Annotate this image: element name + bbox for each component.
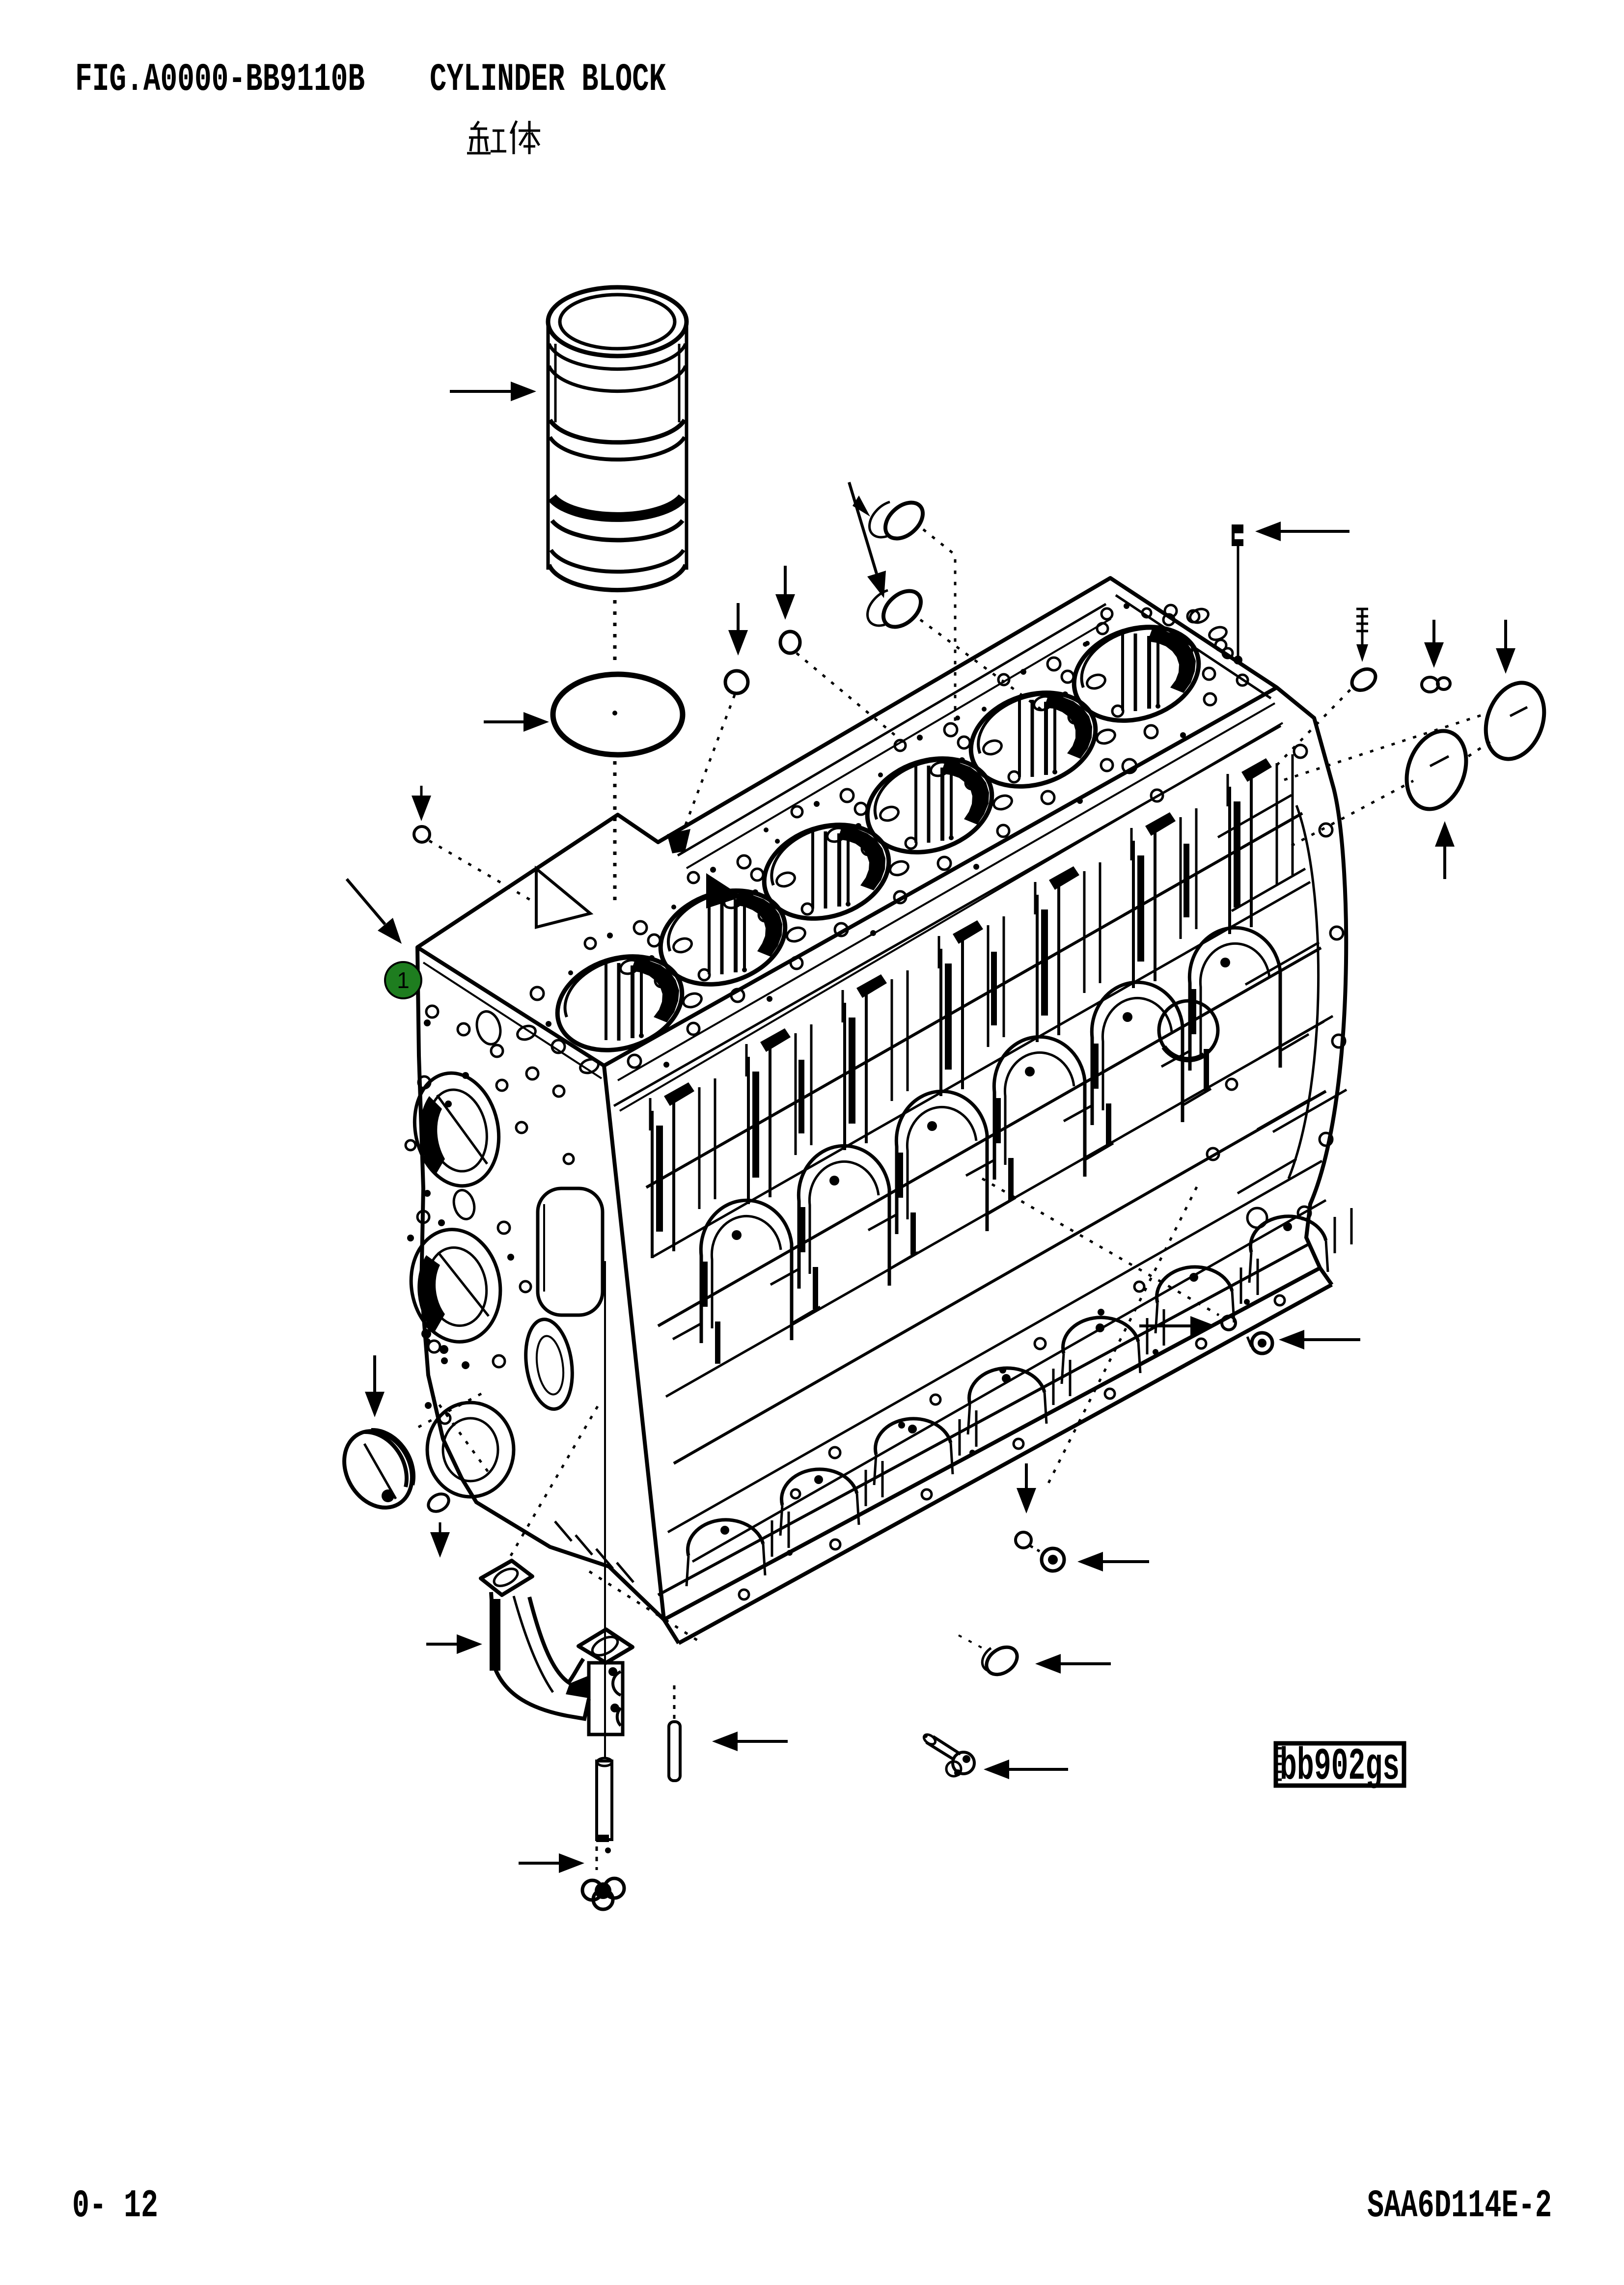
svg-text:FIG.A0000-BB9110B: FIG.A0000-BB9110B [75, 57, 365, 102]
svg-text:0- 12: 0- 12 [72, 2184, 158, 2229]
svg-text:1: 1 [397, 967, 410, 993]
svg-text:CYLINDER BLOCK: CYLINDER BLOCK [430, 57, 666, 102]
svg-text:bb902gs: bb902gs [1280, 1741, 1400, 1792]
svg-text:SAA6D114E-2: SAA6D114E-2 [1367, 2184, 1552, 2229]
